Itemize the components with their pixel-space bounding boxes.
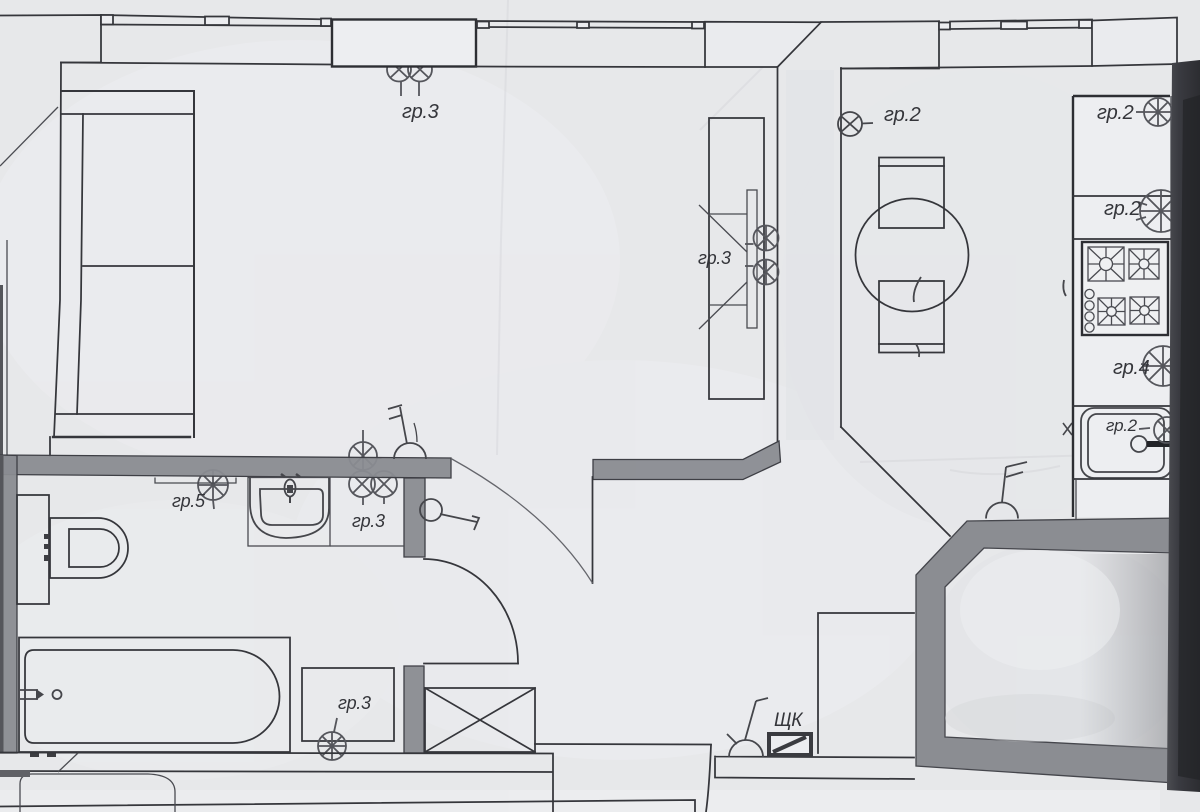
svg-text:гр.3: гр.3 (698, 248, 731, 268)
svg-text:гр.4: гр.4 (1113, 357, 1150, 379)
svg-text:гр.2: гр.2 (1104, 198, 1141, 220)
svg-text:гр.3: гр.3 (338, 693, 371, 713)
svg-text:гр.3: гр.3 (352, 511, 385, 531)
svg-text:ЩК: ЩК (774, 710, 804, 731)
svg-text:гр.2: гр.2 (1106, 416, 1138, 435)
svg-text:гр.5: гр.5 (172, 491, 206, 511)
svg-text:гр.2: гр.2 (1097, 102, 1134, 124)
svg-text:гр.2: гр.2 (884, 104, 921, 126)
svg-text:гр.3: гр.3 (402, 101, 439, 123)
